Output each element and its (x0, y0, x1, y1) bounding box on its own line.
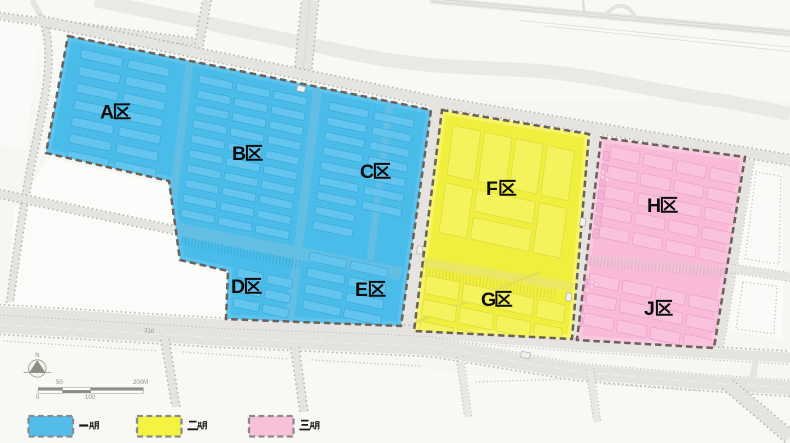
svg-text:C: C (360, 161, 374, 183)
svg-text:J: J (644, 298, 655, 320)
svg-text:N: N (35, 353, 39, 359)
svg-text:A: A (100, 102, 114, 124)
svg-text:F: F (486, 178, 498, 200)
svg-text:50: 50 (56, 380, 63, 386)
svg-text:H: H (647, 195, 661, 217)
svg-text:200M: 200M (133, 380, 148, 386)
svg-text:E: E (355, 279, 368, 301)
svg-text:G: G (481, 289, 496, 311)
svg-text:100: 100 (85, 395, 96, 401)
svg-text:B: B (232, 143, 246, 165)
svg-text:310: 310 (144, 328, 155, 335)
svg-text:D: D (231, 276, 245, 298)
